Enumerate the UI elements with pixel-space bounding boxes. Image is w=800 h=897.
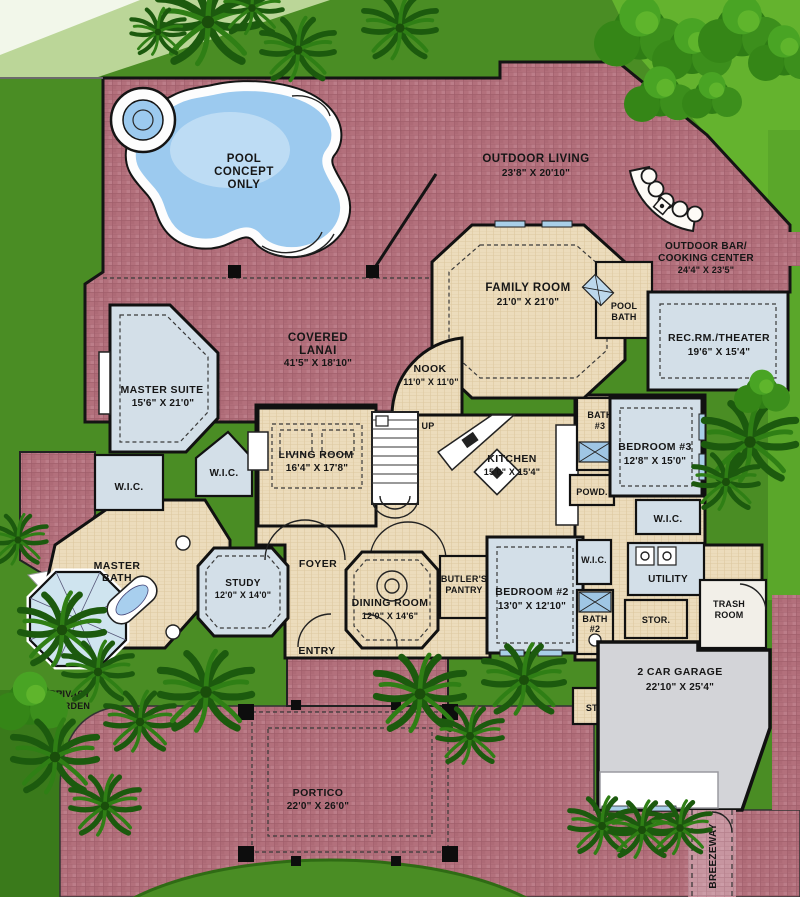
butlers-pantry-label: PANTRY <box>445 585 482 595</box>
toilet-fixture <box>166 625 180 639</box>
outdoor-bar-label: OUTDOOR BAR/ <box>665 241 747 252</box>
bay-window <box>99 352 110 414</box>
wic-label: W.I.C. <box>653 514 682 525</box>
pool-bath-label: BATH <box>611 312 636 322</box>
nook-label: NOOK <box>413 363 446 375</box>
east-walk-paving <box>772 595 800 810</box>
master-bath-label: MASTER <box>94 560 141 572</box>
master-suite-label: MASTER SUITE <box>121 384 204 396</box>
outdoor-living-label: OUTDOOR LIVING <box>482 153 589 165</box>
living-room-label: LIVING ROOM <box>279 449 354 461</box>
utility-label: UTILITY <box>648 574 688 585</box>
pool-bath-label: POOL <box>611 301 638 311</box>
pool-label: ONLY <box>228 179 261 191</box>
pool-label: CONCEPT <box>214 166 274 178</box>
storage-label: STOR. <box>642 615 670 625</box>
wic-label: W.I.C. <box>581 555 607 565</box>
bath3-label: #3 <box>595 421 605 431</box>
dryer-icon <box>658 547 676 565</box>
staircase <box>372 412 418 518</box>
lanai-column <box>228 265 241 278</box>
bedroom2-dims: 13'0" X 12'10" <box>498 601 566 612</box>
lanai-column <box>366 265 379 278</box>
family-room-dims: 21'0" X 21'0" <box>497 297 559 308</box>
breezeway-label: BREEZEWAY <box>708 823 719 888</box>
study-label: STUDY <box>225 578 260 589</box>
foyer-label: FOYER <box>299 558 337 570</box>
kitchen-dims: 15'0" X 15'4" <box>484 467 540 477</box>
utility-group <box>628 543 704 595</box>
pool-label: POOL <box>227 153 262 165</box>
window <box>542 221 572 227</box>
dining-room-label: DINING ROOM <box>352 597 429 609</box>
family-room-label: FAMILY ROOM <box>485 282 570 294</box>
powder-label: POWD. <box>576 487 608 497</box>
garage-dims: 22'10" X 25'4" <box>646 682 714 693</box>
rec-room-dims: 19'6" X 15'4" <box>688 347 750 358</box>
window <box>538 650 562 656</box>
covered-lanai-dims: 41'5" X 18'10" <box>284 358 352 369</box>
bath2-label: BATH <box>582 614 607 624</box>
master-suite-dims: 15'6" X 21'0" <box>132 398 194 409</box>
washer-icon <box>636 547 654 565</box>
living-room-dims: 16'4" X 17'8" <box>286 463 348 474</box>
wic-label: W.I.C. <box>209 468 238 479</box>
outdoor-bar-dims: 24'4" X 23'5" <box>678 265 734 275</box>
rec-room-label: REC.RM./THEATER <box>668 332 770 344</box>
trash-room-label: TRASH <box>713 599 745 609</box>
bath3-group <box>577 398 613 470</box>
up-label: UP <box>422 421 435 431</box>
outdoor-living-dims: 23'8" X 20'10" <box>502 168 570 179</box>
bedroom2-label: BEDROOM #2 <box>495 586 568 598</box>
trash-room-label: ROOM <box>715 610 744 620</box>
wic-label: W.I.C. <box>114 482 143 493</box>
spa-water <box>123 100 163 140</box>
study-dims: 12'0" X 14'0" <box>215 590 271 600</box>
portico-dims: 22'0" X 26'0" <box>287 801 349 812</box>
bath2-label: #2 <box>590 624 600 634</box>
sink-fixture <box>176 536 190 550</box>
garage-door <box>600 772 718 808</box>
bedroom3-label: BEDROOM #3 <box>618 441 691 453</box>
garage-label: 2 CAR GARAGE <box>637 666 722 678</box>
outdoor-bar-label: COOKING CENTER <box>658 253 754 264</box>
covered-lanai-label: COVERED <box>288 332 348 344</box>
butlers-pantry-label: BUTLER'S <box>441 574 487 584</box>
floor-plan-page: POOL CONCEPT ONLY OUTDOOR LIVING 23'8" X… <box>0 0 800 897</box>
media-niche <box>248 432 268 470</box>
floor-plan-drawing: POOL CONCEPT ONLY OUTDOOR LIVING 23'8" X… <box>0 0 800 897</box>
kitchen-label: KITCHEN <box>487 453 536 465</box>
side-walk-pad <box>788 232 800 266</box>
bedroom3-dims: 12'8" X 15'0" <box>624 456 686 467</box>
entry-label: ENTRY <box>298 645 335 657</box>
dining-room-dims: 12'0" X 14'6" <box>362 611 418 621</box>
portico-label: PORTICO <box>293 787 344 799</box>
master-bath-label: BATH <box>102 572 132 584</box>
window <box>495 221 525 227</box>
nook-dims: 11'0" X 11'0" <box>403 377 458 387</box>
covered-lanai-label: LANAI <box>299 345 337 357</box>
